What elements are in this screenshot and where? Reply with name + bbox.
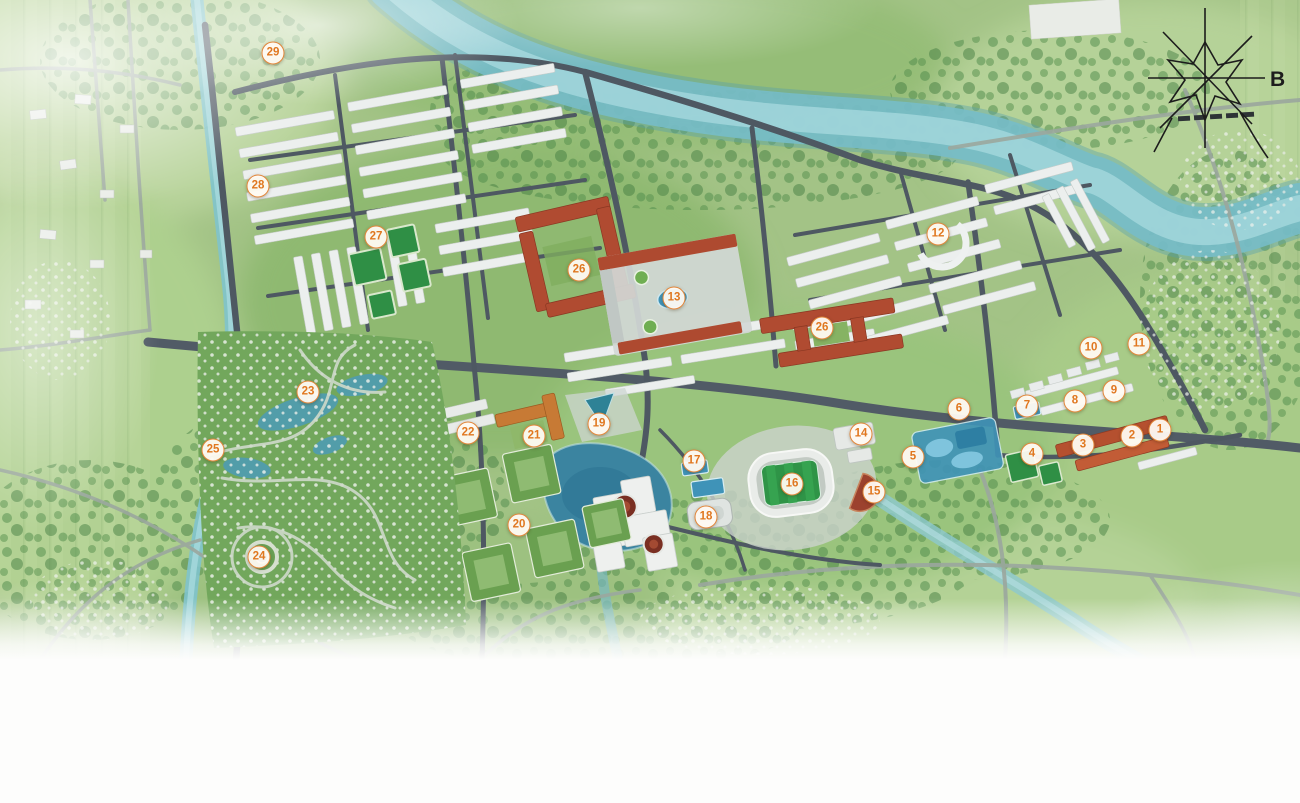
masterplan-page: B 29282712261326101123987619122142213254… [0, 0, 1300, 803]
arena-18 [686, 497, 733, 531]
masterplan-map: B 29282712261326101123987619122142213254… [0, 0, 1300, 660]
compass-north-label: B [1270, 68, 1285, 91]
map-render: B [0, 0, 1300, 660]
legend: 1PHÒNG GIÁO DỤC ĐÀO TẠO2TRƯỜNG TH NGUYỄN… [0, 660, 1300, 803]
